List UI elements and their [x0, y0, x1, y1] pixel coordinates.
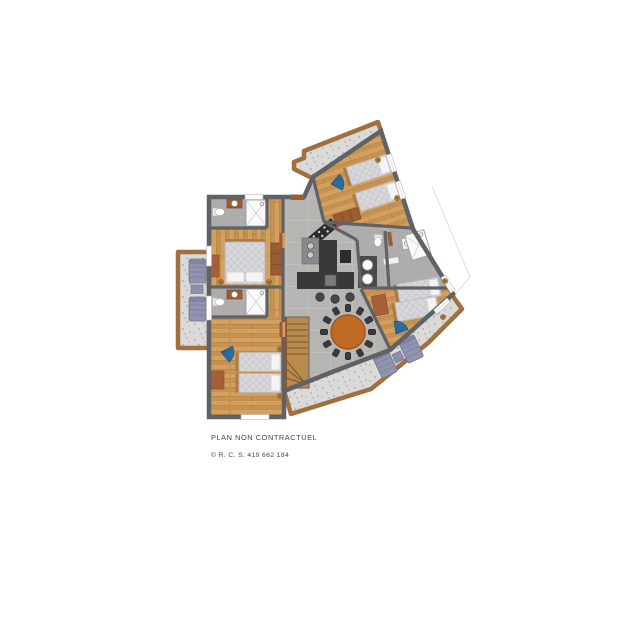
dining-chair — [320, 329, 328, 335]
dining-table — [331, 315, 365, 349]
sun-lounger — [189, 259, 206, 283]
entry-strip-floor — [267, 197, 283, 228]
vanity-sink — [232, 292, 238, 298]
terrace-side-table — [191, 285, 203, 294]
entry-door — [291, 195, 304, 201]
staircase — [285, 317, 310, 388]
registration-text: © R. C. S. 419 662 184 — [211, 451, 289, 459]
dining-chair — [368, 329, 376, 335]
bedside-lamp — [278, 394, 283, 399]
single-bed — [236, 374, 282, 393]
bar-stool — [316, 293, 324, 301]
bar-stool — [331, 295, 339, 303]
bedside-lamp — [219, 280, 224, 285]
double-bed — [225, 239, 265, 284]
single-bed — [236, 353, 282, 372]
floor-plan-drawing: PLAN NON CONTRACTUEL © R. C. S. 419 662 … — [0, 0, 640, 640]
toilet — [213, 298, 225, 306]
wall-lamp — [443, 279, 448, 284]
door-leaf — [280, 233, 283, 248]
dresser — [211, 255, 219, 277]
window — [207, 296, 212, 320]
entry-strip-floor — [267, 288, 283, 317]
vanity-sink — [362, 274, 372, 284]
wall-lamp — [441, 315, 446, 320]
sink — [307, 252, 313, 258]
disclaimer-text: PLAN NON CONTRACTUEL — [211, 433, 317, 442]
dining-chair — [345, 352, 351, 360]
shower — [246, 289, 266, 315]
dining-chair — [345, 304, 351, 312]
bar-stool — [346, 293, 354, 301]
island-sink — [325, 275, 336, 286]
dresser — [211, 371, 224, 389]
door-leaf — [280, 322, 283, 337]
floor-plan-page: PLAN NON CONTRACTUEL © R. C. S. 419 662 … — [0, 0, 640, 640]
window — [245, 195, 263, 200]
window — [241, 415, 269, 420]
sun-lounger — [189, 297, 206, 321]
kitchen-counter — [302, 238, 319, 264]
appliance — [340, 250, 351, 263]
vanity-sink — [232, 201, 238, 207]
sink — [307, 243, 313, 249]
bedside-lamp — [267, 280, 272, 285]
shower — [246, 200, 266, 226]
wall-lamp — [376, 158, 381, 163]
window — [207, 246, 212, 266]
vanity-sink — [362, 260, 372, 270]
toilet — [213, 208, 225, 216]
wall-lamp — [395, 196, 400, 201]
kitchen-island — [319, 240, 337, 274]
